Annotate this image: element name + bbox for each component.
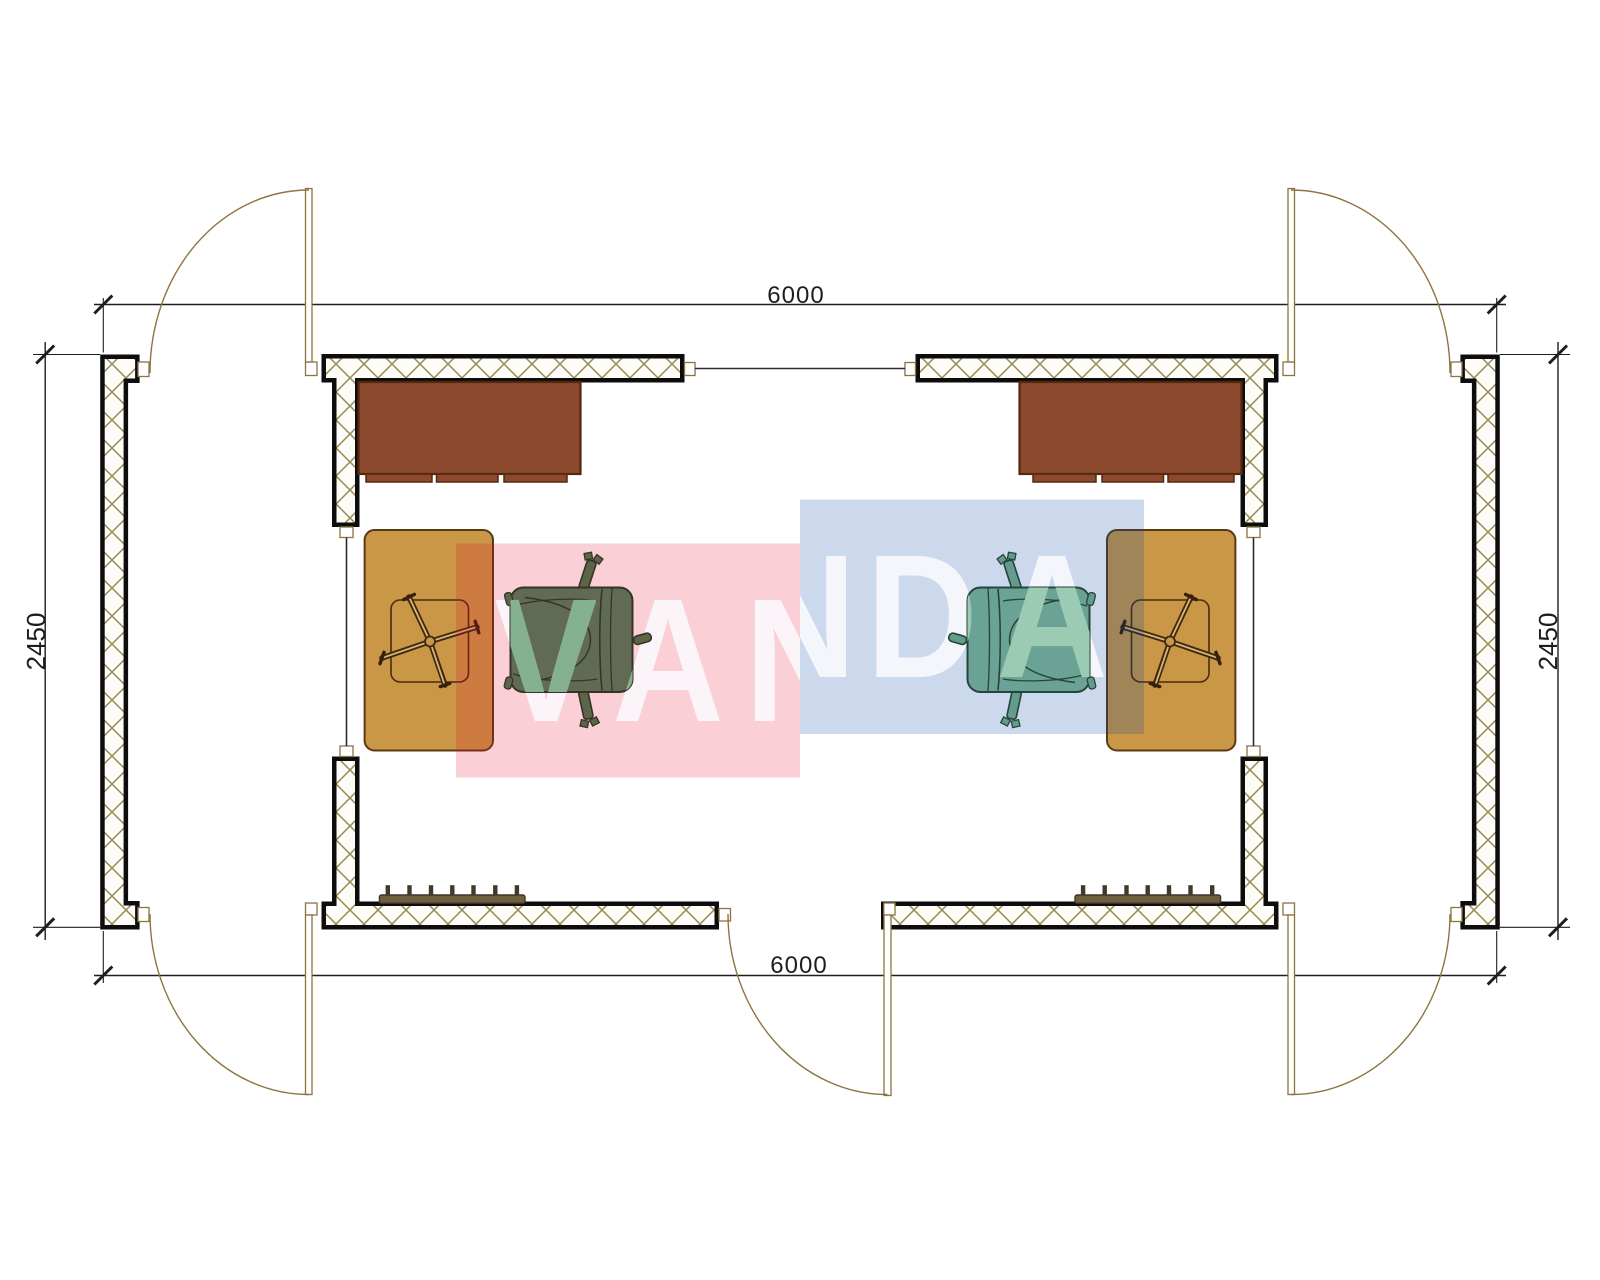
svg-text:6000: 6000 (767, 282, 824, 309)
svg-text:6000: 6000 (770, 952, 827, 979)
svg-text:2450: 2450 (21, 613, 51, 671)
svg-text:2450: 2450 (1533, 613, 1563, 671)
